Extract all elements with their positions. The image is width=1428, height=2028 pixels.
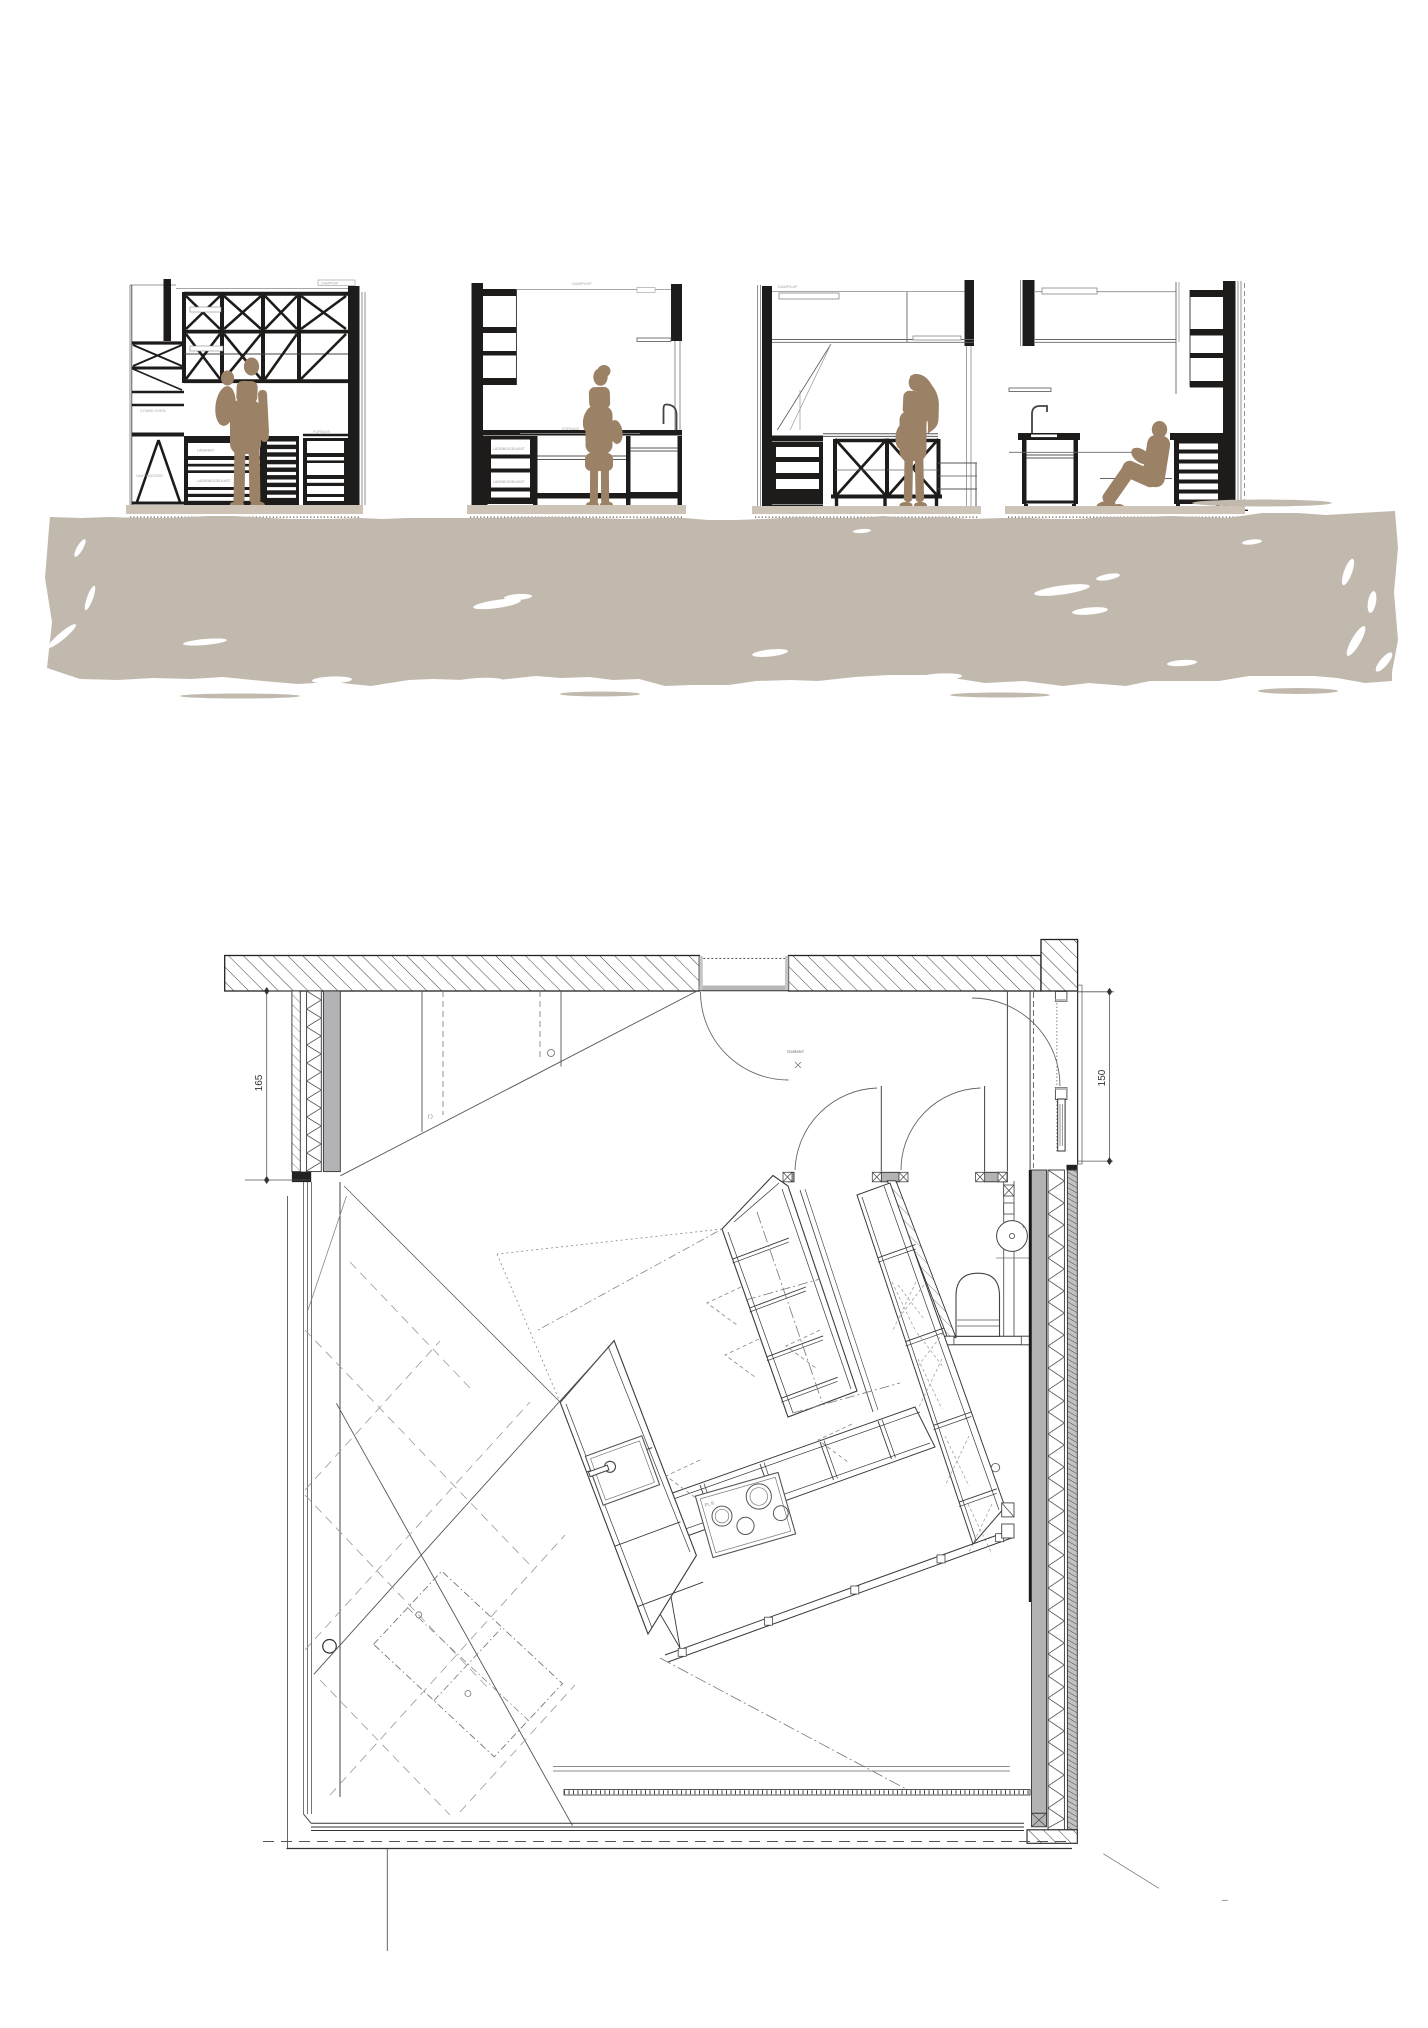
- svg-text:LADENKOGELKAST: LADENKOGELKAST: [493, 480, 525, 484]
- svg-text:LADENKOGELKAST: LADENKOGELKAST: [197, 479, 232, 483]
- svg-text:( ): ( ): [428, 1114, 433, 1120]
- svg-text:165: 165: [254, 1074, 265, 1091]
- svg-text:DAMPKAP: DAMPKAP: [778, 284, 798, 289]
- svg-text:VAATWASSER: VAATWASSER: [136, 473, 163, 478]
- svg-text:LADENKO: LADENKO: [197, 449, 214, 453]
- svg-text:Gasketel: Gasketel: [787, 1049, 804, 1054]
- svg-text:DAMPKAP: DAMPKAP: [321, 282, 339, 286]
- svg-text:LADENKOGELKAST: LADENKOGELKAST: [493, 447, 525, 451]
- svg-text:DAMPKAP: DAMPKAP: [572, 281, 592, 286]
- svg-text:150: 150: [1097, 1069, 1108, 1086]
- svg-text:FORNUIS: FORNUIS: [562, 427, 580, 431]
- svg-text:+: +: [1022, 1225, 1026, 1231]
- svg-text:COMBI OVEN: COMBI OVEN: [140, 408, 166, 413]
- svg-text:FORNUIS: FORNUIS: [313, 430, 331, 434]
